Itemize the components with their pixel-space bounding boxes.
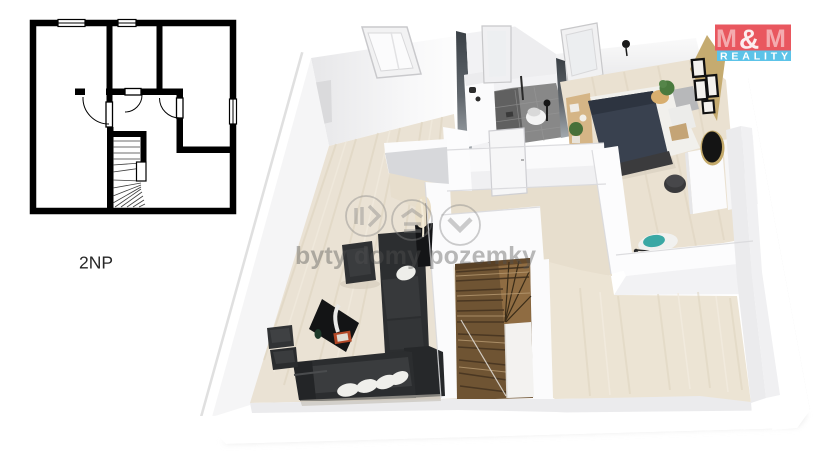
- svg-text:M: M: [765, 25, 786, 53]
- svg-text:M: M: [716, 25, 737, 53]
- svg-text:byty domy pozemky: byty domy pozemky: [295, 242, 536, 270]
- svg-text:2NP: 2NP: [79, 253, 113, 273]
